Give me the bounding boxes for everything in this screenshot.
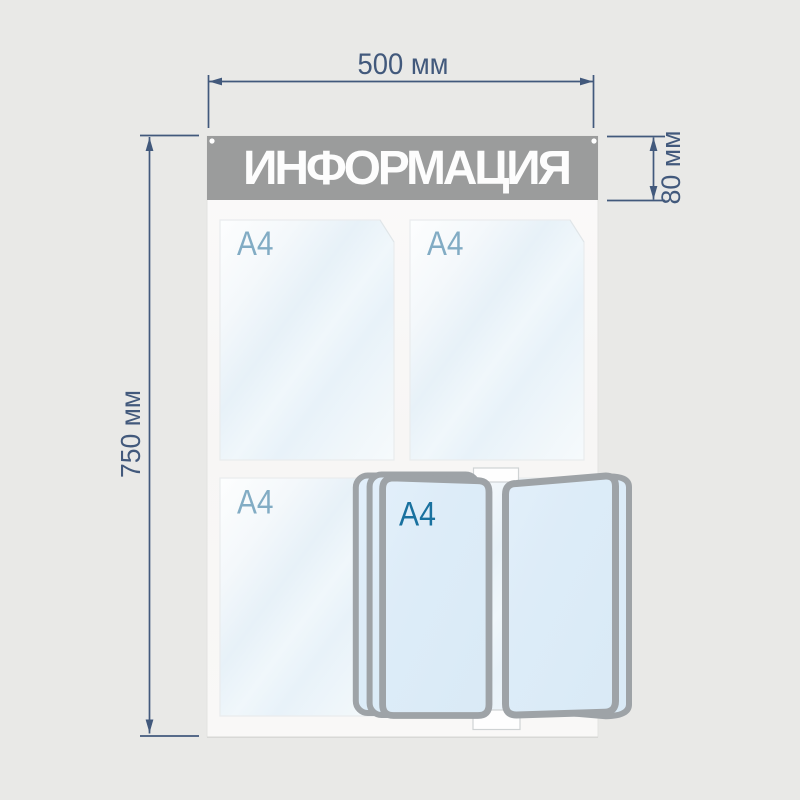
svg-text:ИНФОРМАЦИЯ: ИНФОРМАЦИЯ xyxy=(243,142,572,195)
svg-text:A4: A4 xyxy=(237,225,274,263)
svg-text:500 мм: 500 мм xyxy=(358,48,449,81)
svg-text:A4: A4 xyxy=(427,225,464,263)
svg-text:A4: A4 xyxy=(399,496,436,534)
svg-text:750 мм: 750 мм xyxy=(115,390,146,478)
svg-text:A4: A4 xyxy=(237,484,274,522)
svg-text:80 мм: 80 мм xyxy=(656,131,686,205)
